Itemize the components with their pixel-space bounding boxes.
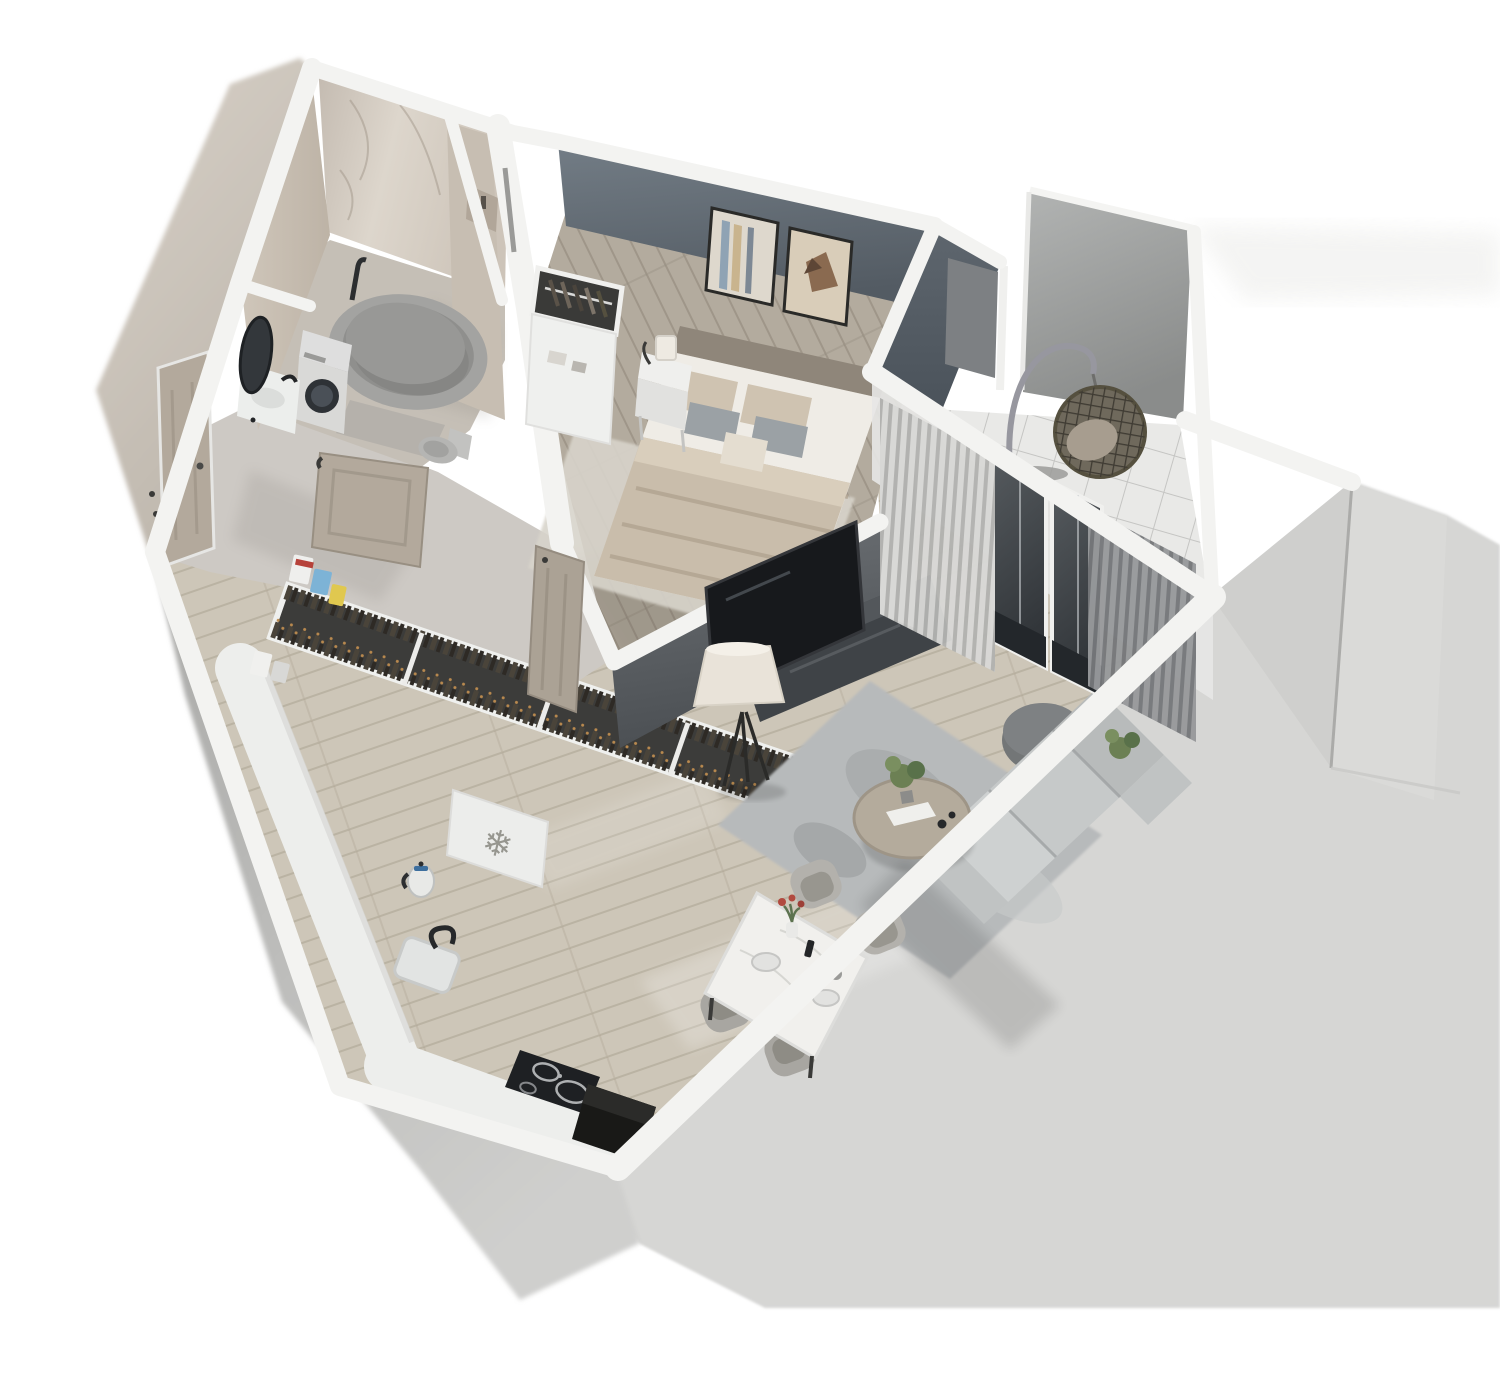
bedroom-door-open [528, 546, 584, 712]
wall-hook [149, 491, 155, 497]
floorplan-svg: ❄ [0, 0, 1500, 1385]
table-leg [710, 998, 712, 1020]
bedroom-wardrobe [526, 268, 622, 444]
bathroom-door-open [312, 453, 428, 567]
coffee-table-cup [949, 812, 956, 819]
door-handle [197, 463, 204, 470]
curtain-fold [880, 398, 915, 628]
washing-machine [295, 330, 352, 434]
lamp-shade-top [706, 642, 770, 656]
background-haze [1190, 225, 1500, 300]
artwork-right [784, 228, 852, 325]
balcony-side-window [945, 258, 998, 378]
plate [752, 953, 780, 971]
floorplan-render: ❄ [0, 0, 1500, 1385]
door-handle [542, 557, 548, 563]
table-leg [810, 1056, 812, 1078]
coffee-table-cup [938, 820, 947, 829]
lamp-shadow [718, 783, 786, 801]
window-mullion [1000, 266, 1004, 390]
artwork-left [706, 208, 778, 305]
